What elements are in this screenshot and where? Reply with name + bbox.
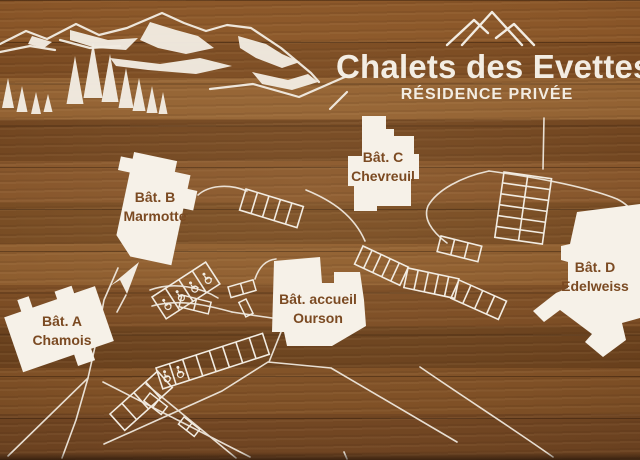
building-label-c: Bât. C Chevreuil (338, 148, 428, 186)
building-d-subname: Edelweiss (550, 277, 640, 296)
sign-subtitle: RÉSIDENCE PRIVÉE (336, 87, 638, 104)
building-a-subname: Chamois (17, 331, 107, 350)
building-label-accueil: Bât. accueil Ourson (268, 290, 368, 328)
building-label-b: Bât. B Marmotte (110, 188, 200, 226)
parking-band-3 (451, 280, 507, 319)
parking-row-bottom-b (156, 333, 269, 389)
parking-band-2 (404, 268, 459, 298)
parking-band-1 (355, 246, 409, 285)
parking-row-center (240, 189, 304, 228)
building-accueil-subname: Ourson (268, 309, 368, 328)
sign-title: Chalets des Evettes (336, 50, 638, 84)
sign-title-block: Chalets des Evettes RÉSIDENCE PRIVÉE (336, 50, 638, 104)
building-c-subname: Chevreuil (338, 167, 428, 186)
building-b-subname: Marmotte (110, 207, 200, 226)
building-accueil-name: Bât. accueil (268, 290, 368, 309)
mountain-logo-icon (447, 12, 534, 45)
building-a-name: Bât. A (17, 312, 107, 331)
building-label-a: Bât. A Chamois (17, 312, 107, 350)
parking-row-bottom-a (110, 371, 172, 430)
building-c-name: Bât. C (338, 148, 428, 167)
pine-trees (2, 42, 168, 114)
building-label-d: Bât. D Edelweiss (550, 258, 640, 296)
parking-grid-d (495, 172, 552, 244)
building-b-name: Bât. B (110, 188, 200, 207)
wooden-site-map-sign: Chalets des Evettes RÉSIDENCE PRIVÉE Bât… (0, 0, 640, 460)
building-d-name: Bât. D (550, 258, 640, 277)
